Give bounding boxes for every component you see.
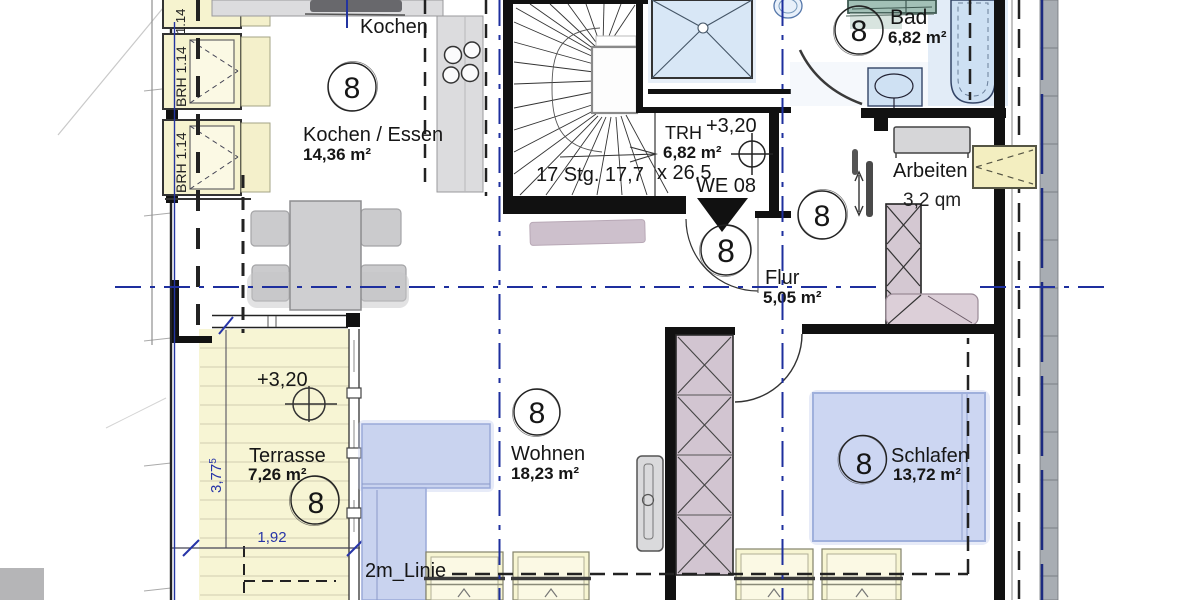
svg-text:14,36 m²: 14,36 m² xyxy=(303,145,371,164)
svg-text:13,72 m²: 13,72 m² xyxy=(893,465,961,484)
svg-text:8: 8 xyxy=(851,15,868,48)
svg-text:Kochen: Kochen xyxy=(360,16,428,38)
svg-text:Kochen / Essen: Kochen / Essen xyxy=(303,124,443,146)
svg-text:8: 8 xyxy=(344,72,361,105)
svg-text:8: 8 xyxy=(717,233,735,269)
svg-text:6,82 m²: 6,82 m² xyxy=(888,28,947,47)
svg-text:Bad: Bad xyxy=(890,6,927,29)
svg-text:8: 8 xyxy=(308,487,325,520)
svg-text:5,05 m²: 5,05 m² xyxy=(763,288,822,307)
svg-text:18,23 m²: 18,23 m² xyxy=(511,464,579,483)
svg-text:+3,20: +3,20 xyxy=(257,369,308,391)
svg-text:2m_Linie: 2m_Linie xyxy=(365,560,446,582)
svg-text:BRH 1.14: BRH 1.14 xyxy=(173,132,189,193)
svg-text:1,92: 1,92 xyxy=(257,529,286,546)
svg-text:6,82 m²: 6,82 m² xyxy=(663,143,722,162)
svg-text:BRH 1.14: BRH 1.14 xyxy=(173,46,189,107)
svg-text:TRH: TRH xyxy=(665,123,702,143)
svg-text:17 Stg. 17,7: 17 Stg. 17,7 xyxy=(536,164,644,186)
svg-text:Terrasse: Terrasse xyxy=(249,445,326,467)
svg-text:8: 8 xyxy=(856,448,873,481)
svg-text:8: 8 xyxy=(814,200,831,233)
svg-text:Schlafen: Schlafen xyxy=(891,445,969,467)
svg-text:+3,20: +3,20 xyxy=(706,115,757,137)
svg-text:8: 8 xyxy=(529,397,546,430)
svg-text:Arbeiten: Arbeiten xyxy=(893,160,968,182)
svg-text:3,2 qm: 3,2 qm xyxy=(903,190,961,211)
svg-text:WE 08: WE 08 xyxy=(696,175,756,197)
svg-text:1.14: 1.14 xyxy=(173,9,188,34)
svg-text:7,26 m²: 7,26 m² xyxy=(248,465,307,484)
svg-text:Wohnen: Wohnen xyxy=(511,443,585,465)
